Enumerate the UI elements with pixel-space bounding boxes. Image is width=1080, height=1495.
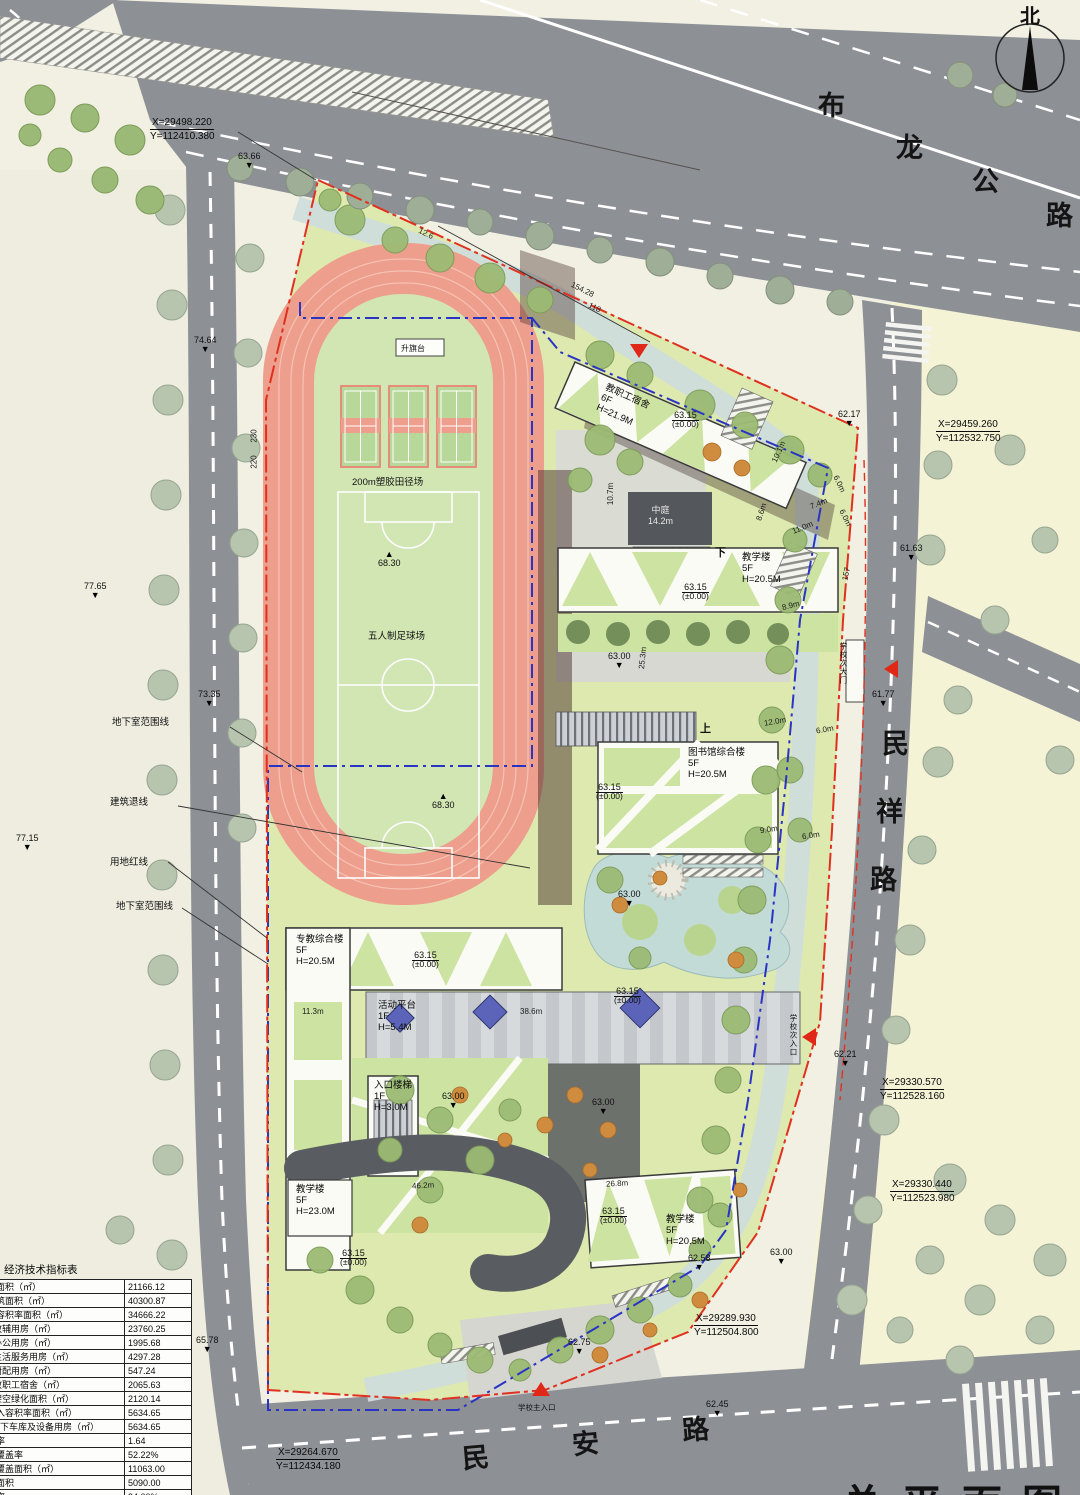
table-row: 总建筑面积（㎡）40300.87 [0,1294,192,1308]
table-row: 计入容积率面积（㎡）34666.22 [0,1308,192,1322]
table-label: 容积率 [0,1434,125,1448]
entrance-marker [630,344,648,358]
boundary-line-label: 建筑退线 [110,794,148,808]
road-name-bulong: 公 [972,160,999,199]
table-row: 不计入容积率面积（㎡）5634.65 [0,1406,192,1420]
dimension-label: 46.2m [412,1181,435,1190]
coordinate-callout: X=29330.440Y=112523.980 [890,1178,955,1205]
building-label-library: 图书馆综合楼5FH=20.5M [688,747,745,781]
building-label-spec: 专教综合楼5FH=20.5M [296,934,344,968]
table-value: 11063.00 [125,1462,192,1476]
coordinate-callout: X=29498.220Y=112410.380 [150,116,215,143]
table-value: 2120.14 [125,1392,192,1406]
table-label: 教辅用房（㎡） [0,1322,125,1336]
road-name-bulong: 布 [818,84,845,123]
table-label: 教职工宿舍（㎡） [0,1378,125,1392]
dimension-label: 8.9m [781,600,800,612]
level-marker: 63.15(±0.00) [340,1248,367,1268]
dimension-label: 220 [251,455,259,468]
dimension-label: 38.6m [520,1008,542,1016]
peak-elevation: ▲68.30 [378,550,401,568]
dimension-label: 10.7m [607,483,615,505]
spot-elevation: 73.35▼ [198,690,221,708]
level-marker: 63.15(±0.00) [600,1206,627,1226]
coordinate-callout: X=29330.570Y=112528.160 [880,1076,945,1103]
dimension-label: 8.6m [755,502,768,521]
dimension-label: 12.0m [763,716,786,728]
building-label-teach-se: 教学楼5FH=20.5M [666,1214,705,1248]
building-label-platform: 活动平台1FH=5.4M [378,1000,416,1034]
table-title: 经济技术指标表 [4,1262,192,1277]
table-value: 52.22% [125,1448,192,1462]
building-label-teach-sw: 教学楼5FH=23.0M [296,1184,335,1218]
boundary-line-label: 用地红线 [110,854,148,868]
table-value: 4297.28 [125,1350,192,1364]
coordinate-callout: X=29459.260Y=112532.750 [936,418,1001,445]
table-label: 不计入容积率面积（㎡） [0,1406,125,1420]
table-row: 绿地面积5090.00 [0,1476,192,1490]
spot-elevation: 77.15▼ [16,834,39,852]
spot-elevation: 63.00▼ [770,1248,793,1266]
table-row: 用地面积（㎡）21166.12 [0,1280,192,1294]
dimension-label: 230 [251,429,259,442]
table-row: 厨配用房（㎡）547.24 [0,1364,192,1378]
road-name-minxiang: 路 [870,858,897,897]
table-label: 厨配用房（㎡） [0,1364,125,1378]
level-marker: 63.15(±0.00) [614,986,641,1006]
spot-elevation: 62.58▼ [688,1254,711,1272]
dimension-label: 157 [841,567,852,582]
spot-elevation: 77.65▼ [84,582,107,600]
dimension-label: 11.0m [791,520,814,536]
table-value: 2065.63 [125,1378,192,1392]
level-marker: 63.15(±0.00) [682,582,709,602]
table-value: 24.00% [125,1490,192,1495]
road-name-minxiang: 祥 [876,790,903,829]
spot-elevation: 62.45▼ [706,1400,729,1418]
road-name-bulong: 路 [1046,194,1073,233]
boundary-line-label: 地下室范围线 [116,898,173,912]
table-label: 建筑覆盖面积（㎡） [0,1462,125,1476]
road-name-minxiang: 民 [882,722,909,761]
table-value: 5634.65 [125,1420,192,1434]
table-value: 40300.87 [125,1294,192,1308]
table-row: 教职工宿舍（㎡）2065.63 [0,1378,192,1392]
boundary-line-label: 地下室范围线 [112,714,169,728]
table-row: 办公用房（㎡）1995.68 [0,1336,192,1350]
spot-elevation: 63.00▼ [442,1092,465,1110]
dimension-label: 12.6 [417,227,435,241]
table-row: 架空绿化面积（㎡）2120.14 [0,1392,192,1406]
coordinate-callout: X=29264.670Y=112434.180 [276,1446,341,1473]
table-label: 生活服务用房（㎡） [0,1350,125,1364]
table-label: 绿地面积 [0,1476,125,1490]
table-value: 547.24 [125,1364,192,1378]
site-plan-page: 北 布 龙 公 路 民 祥 路 民 安 路 总平面图 升旗台 200m塑胶田径场… [0,0,1080,1495]
table-row: 建筑覆盖率52.22% [0,1448,192,1462]
ramp-up-label: 上 [700,720,711,736]
dimension-label: 11.3m [302,1008,324,1016]
dimension-label: 6.0m [802,831,821,841]
table-value: 1.64 [125,1434,192,1448]
soccer-label: 五人制足球场 [368,628,425,642]
entrance-label: 学校主入口 [518,1402,556,1413]
table-label: 计入容积率面积（㎡） [0,1308,125,1322]
table-value: 1995.68 [125,1336,192,1350]
spot-elevation: 74.64▼ [194,336,217,354]
level-marker: 63.15(±0.00) [596,782,623,802]
spot-elevation: 61.63▼ [900,544,923,562]
drawing-title: 总平面图 [842,1472,1080,1495]
table-label: 地下车库及设备用房（㎡） [0,1420,125,1434]
coordinate-callout: X=29289.930Y=112504.800 [694,1312,759,1339]
spot-elevation: 65.78▼ [196,1336,219,1354]
table-row: 其中教辅用房（㎡）23760.25 [0,1322,192,1336]
table-label: 总建筑面积（㎡） [0,1294,125,1308]
table-value: 5090.00 [125,1476,192,1490]
building-label-dorm: 教职工宿舍6FH=21.9M [594,382,651,432]
dimension-label: 7.4m [809,497,828,511]
road-name-minan: 安 [570,1421,600,1462]
table-row: 生活服务用房（㎡）4297.28 [0,1350,192,1364]
table-value: 23760.25 [125,1322,192,1336]
spot-elevation: 62.21▼ [834,1050,857,1068]
spot-elevation: 63.00▼ [608,652,631,670]
table-label: 架空绿化面积（㎡） [0,1392,125,1406]
dimension-label: 25.3m [638,647,648,670]
annotation-layer: 北 布 龙 公 路 民 祥 路 民 安 路 总平面图 升旗台 200m塑胶田径场… [0,0,1080,1495]
road-name-minan: 民 [460,1435,490,1476]
entrance-marker [884,660,898,678]
spot-elevation: 63.66▼ [238,152,261,170]
table-row: 建筑覆盖面积（㎡）11063.00 [0,1462,192,1476]
building-label-teach-north: 教学楼5FH=20.5M [742,552,781,586]
table-row: 绿地率24.00% [0,1490,192,1495]
table-label: 用地面积（㎡） [0,1280,125,1294]
table-value: 5634.65 [125,1406,192,1420]
table-label: 建筑覆盖率 [0,1448,125,1462]
dimension-label: 6.0m [815,725,834,736]
flag-platform-label: 升旗台 [401,343,425,354]
building-label-entry-stairs: 入口楼梯1FH=3.0M [374,1080,412,1114]
spot-elevation: 63.00▼ [618,890,641,908]
track-label: 200m塑胶田径场 [352,474,423,488]
spot-elevation: 62.75▼ [568,1338,591,1356]
dimension-label: 10.1m [771,440,787,464]
dimension-label: 9.0m [760,825,779,835]
spot-elevation: 61.77▼ [872,690,895,708]
table-value: 21166.12 [125,1280,192,1294]
entrance-label: 学校次大门 [838,642,849,685]
spot-elevation: 62.17▼ [838,410,861,428]
dimension-label: 6.0m [831,474,846,494]
dimension-label: 6.0m [837,508,852,528]
dimension-label: 154.28 [569,281,594,299]
spot-elevation: 63.00▼ [592,1098,615,1116]
level-marker: 63.15(±0.00) [412,950,439,970]
entrance-label: 学校次入口 [788,1014,799,1057]
entrance-marker [532,1382,550,1396]
dimension-label: 26.8m [606,1179,629,1188]
road-name-minan: 路 [680,1407,710,1448]
dimension-label: 118 [587,302,602,315]
atrium-label: 中庭14.2m [648,505,673,527]
technical-index-table: 经济技术指标表 用地面积（㎡）21166.12总建筑面积（㎡）40300.87计… [0,1262,192,1495]
table-value: 34666.22 [125,1308,192,1322]
table-row: 容积率1.64 [0,1434,192,1448]
table-label: 绿地率 [0,1490,125,1495]
peak-elevation: ▲68.30 [432,792,455,810]
north-label: 北 [1020,0,1040,29]
ramp-down-label: 下 [715,544,726,560]
table-row: 地下车库及设备用房（㎡）5634.65 [0,1420,192,1434]
table-label: 办公用房（㎡） [0,1336,125,1350]
level-marker: 63.15(±0.00) [672,410,699,430]
road-name-bulong: 龙 [896,126,923,165]
entrance-marker [802,1028,816,1046]
